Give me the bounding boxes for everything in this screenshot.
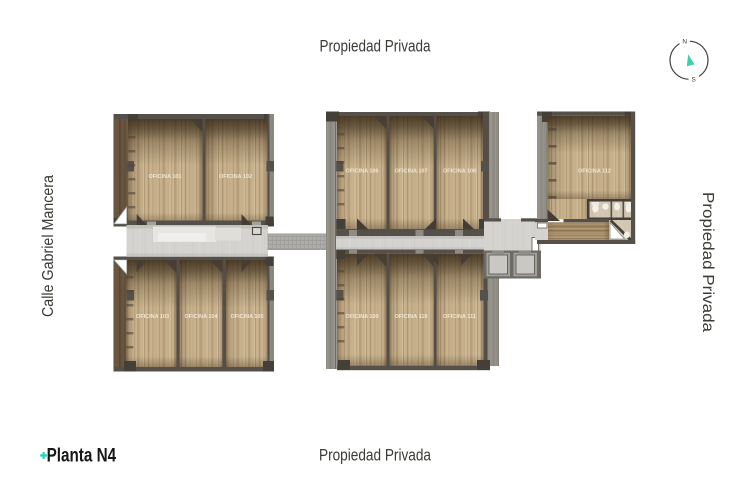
svg-text:OFICINA 107: OFICINA 107 (395, 169, 428, 175)
svg-text:Propiedad Privada: Propiedad Privada (320, 38, 431, 56)
svg-text:Planta N4: Planta N4 (47, 445, 117, 467)
svg-text:N: N (682, 39, 687, 46)
svg-text:OFICINA 108: OFICINA 108 (443, 169, 476, 175)
svg-text:Propiedad Privada: Propiedad Privada (699, 192, 716, 332)
svg-text:OFICINA 103: OFICINA 103 (136, 314, 169, 320)
svg-text:OFICINA 109: OFICINA 109 (346, 314, 379, 320)
svg-text:OFICINA 110: OFICINA 110 (395, 314, 428, 320)
svg-text:Propiedad Privada: Propiedad Privada (319, 447, 431, 465)
svg-text:OFICINA 104: OFICINA 104 (185, 314, 218, 320)
svg-text:OFICINA 102: OFICINA 102 (219, 174, 252, 180)
svg-text:OFICINA 111: OFICINA 111 (443, 314, 476, 320)
svg-text:OFICINA 106: OFICINA 106 (346, 169, 379, 175)
svg-text:OFICINA 105: OFICINA 105 (231, 314, 264, 320)
svg-text:OFICINA 101: OFICINA 101 (149, 174, 182, 180)
svg-text:Calle Gabriel Mancera: Calle Gabriel Mancera (40, 175, 57, 317)
svg-text:S: S (691, 76, 695, 83)
svg-text:OFICINA 112: OFICINA 112 (578, 169, 611, 175)
